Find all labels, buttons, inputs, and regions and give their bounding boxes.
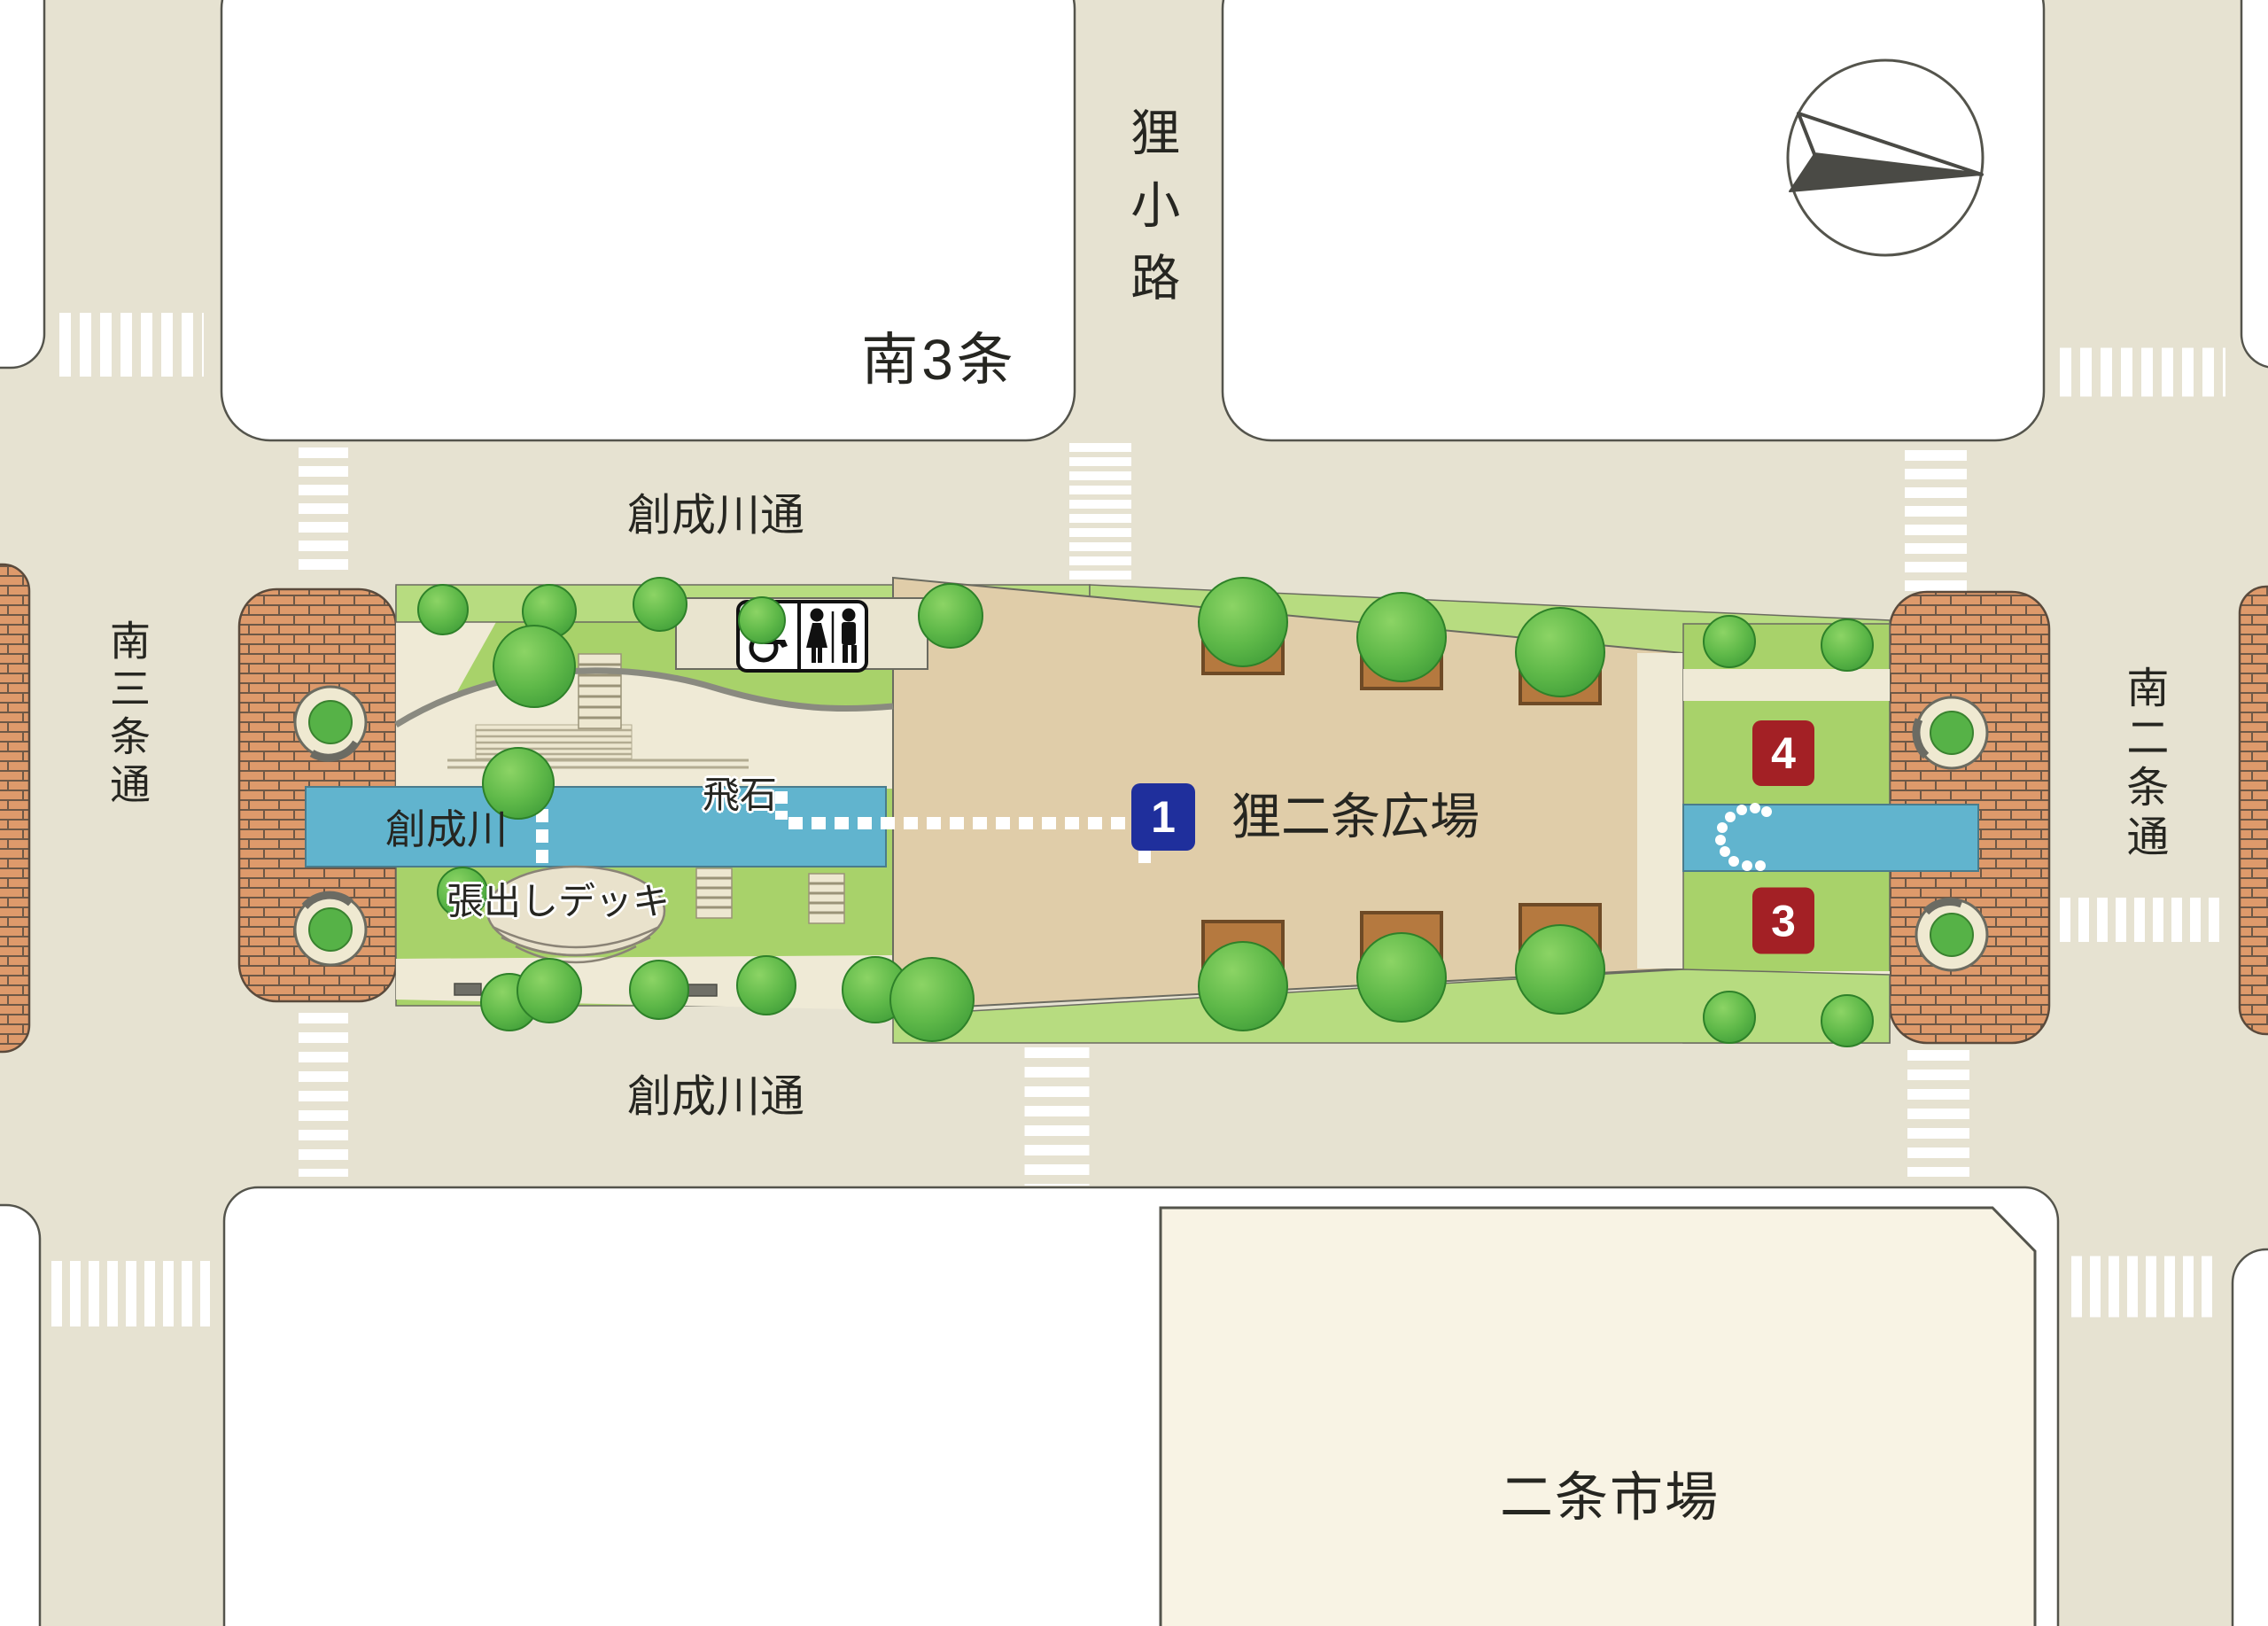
north-arrow-icon: [1788, 60, 1983, 255]
tree: [1357, 593, 1446, 681]
label-stepping-stones: 飛石: [703, 771, 777, 821]
site-map: 南3条 狸小路 創成川通 創成川通 南三条通 南二条通 創成川 飛石 張出しデッ…: [0, 0, 2268, 1626]
round-planter: [1916, 899, 1987, 970]
badge-spot-4: 4: [1752, 720, 1814, 786]
tree: [1821, 619, 1873, 671]
round-planter: [1916, 697, 1987, 768]
tree: [919, 584, 983, 648]
tree: [1516, 925, 1604, 1014]
label-sosei-dori-north: 創成川通: [627, 486, 804, 546]
bench: [454, 984, 481, 995]
label-minami-2jo-dori: 南二条通: [2114, 665, 2171, 864]
tree: [1704, 992, 1755, 1043]
tree: [1704, 616, 1755, 667]
tree: [493, 626, 575, 707]
round-planter: [295, 687, 366, 758]
block-top-left-sliver: [0, 0, 44, 368]
tree: [1199, 578, 1287, 666]
badge-spot-3: 3: [1752, 888, 1814, 954]
tree: [737, 956, 796, 1015]
label-deck: 張出しデッキ: [447, 877, 670, 928]
label-sosei-dori-south: 創成川通: [627, 1067, 804, 1127]
round-planter: [295, 894, 366, 965]
tree: [517, 959, 581, 1023]
label-tanukikoji: 狸小路: [1118, 106, 1185, 324]
label-sosei-river: 創成川: [385, 802, 508, 857]
tree: [739, 597, 785, 643]
label-plaza: 狸二条広場: [1231, 783, 1480, 851]
tree: [418, 585, 468, 634]
label-south3jo: 南3条: [861, 322, 1017, 398]
block-top-far-right-sliver: [2241, 0, 2268, 368]
block-bottom-right: [2233, 1249, 2268, 1626]
label-market: 二条市場: [1500, 1462, 1720, 1534]
north-stairs: [579, 654, 621, 728]
tree: [633, 578, 687, 631]
block-bottom-left-sliver: [0, 1205, 40, 1626]
brick-far-left: [0, 564, 29, 1052]
tree: [630, 961, 688, 1019]
tree: [1357, 933, 1446, 1022]
label-minami-3jo-dori: 南三条通: [100, 619, 155, 811]
nijo-market-block: [1161, 1208, 2035, 1626]
tree: [1199, 942, 1287, 1031]
brick-far-right: [2240, 587, 2268, 1034]
tree: [1516, 608, 1604, 696]
tree: [1821, 995, 1873, 1046]
bench: [687, 984, 717, 996]
tree: [890, 958, 974, 1041]
plaza-east-path: [1637, 653, 1683, 969]
badge-plaza-1: 1: [1131, 783, 1195, 851]
east-garden-path-top: [1683, 669, 1890, 701]
